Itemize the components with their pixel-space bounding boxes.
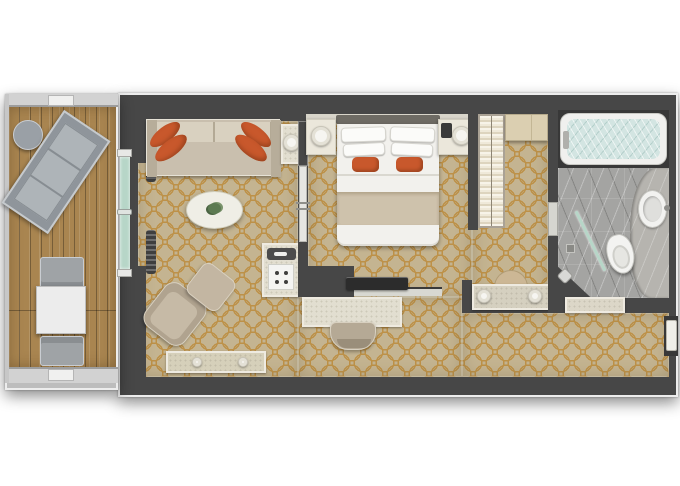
bed-runner bbox=[337, 192, 439, 225]
closet-cabinet-divider bbox=[531, 115, 532, 140]
hallway-floor-east bbox=[462, 313, 669, 377]
floor-plan-canvas bbox=[0, 0, 680, 486]
espresso-machine bbox=[268, 264, 294, 290]
sliding-door-handle bbox=[296, 202, 310, 204]
bathtub-water bbox=[567, 119, 660, 159]
washbasin-bowl bbox=[643, 196, 662, 222]
washbasin bbox=[638, 190, 667, 228]
outdoor-dining-table bbox=[36, 286, 86, 334]
sofa-arm-right bbox=[271, 120, 281, 177]
desk-chair bbox=[330, 322, 376, 350]
balcony-railing-post bbox=[48, 95, 74, 106]
minibar-bottle bbox=[274, 252, 287, 256]
balcony-door-frame-bottom bbox=[117, 269, 132, 277]
bed-headboard bbox=[336, 115, 440, 124]
vanity-lamp-right bbox=[528, 289, 542, 303]
bathroom-counter bbox=[630, 168, 669, 298]
toilet-seat bbox=[610, 243, 632, 270]
telephone bbox=[441, 123, 452, 138]
nightstand-lamp-left bbox=[311, 126, 331, 146]
sofa-arm-left bbox=[147, 120, 157, 177]
washbasin-faucet bbox=[664, 205, 670, 211]
bedroom-sliding-door bbox=[299, 166, 307, 242]
bathtub bbox=[560, 113, 667, 165]
balcony-railing-left bbox=[5, 94, 9, 383]
vanity-wall-stub bbox=[462, 280, 472, 313]
bed bbox=[337, 124, 439, 246]
shower-drain bbox=[566, 244, 575, 253]
espresso-cup-dots bbox=[275, 271, 279, 275]
bed-pillow-back-left bbox=[341, 126, 386, 143]
vanity-lamp-left bbox=[477, 289, 491, 303]
entry-door bbox=[666, 320, 677, 351]
hallway-console bbox=[565, 297, 625, 313]
bed-orange-pillow-right bbox=[396, 157, 423, 172]
bench bbox=[166, 351, 266, 373]
bathroom-door-threshold bbox=[548, 202, 558, 236]
duvet-fold bbox=[337, 174, 439, 176]
bed-pillow-back-right bbox=[390, 126, 435, 143]
wardrobe-wall bbox=[468, 114, 478, 230]
bathtub-faucet bbox=[563, 131, 569, 149]
balcony-door-frame-top bbox=[117, 149, 132, 157]
outdoor-chair-north bbox=[40, 257, 84, 289]
wardrobe bbox=[478, 114, 505, 228]
wardrobe-rail bbox=[491, 116, 492, 226]
coffee-table-plant bbox=[208, 203, 221, 214]
wall-stub-upper-left bbox=[138, 121, 146, 163]
curtain-lower bbox=[146, 230, 156, 274]
tv bbox=[346, 277, 408, 290]
desk-chair-back bbox=[337, 339, 371, 348]
minibar-tray bbox=[267, 248, 296, 260]
bed-pillow-front-right bbox=[391, 142, 434, 157]
bed-pillow-front-left bbox=[343, 142, 386, 157]
bench-ornament-2 bbox=[238, 357, 248, 367]
outdoor-chair-south bbox=[40, 336, 84, 366]
balcony-railing-post bbox=[48, 369, 74, 381]
bathroom-left-wall-upper bbox=[548, 110, 558, 202]
sofa-back-cushion-split bbox=[213, 122, 215, 142]
balcony-door-handle bbox=[117, 209, 132, 215]
sliding-door-handle bbox=[296, 208, 310, 210]
minibar-cabinet bbox=[262, 243, 300, 297]
bench-ornament-1 bbox=[192, 357, 202, 367]
closet-cabinet bbox=[505, 114, 548, 141]
bed-orange-pillow-left bbox=[352, 157, 379, 172]
